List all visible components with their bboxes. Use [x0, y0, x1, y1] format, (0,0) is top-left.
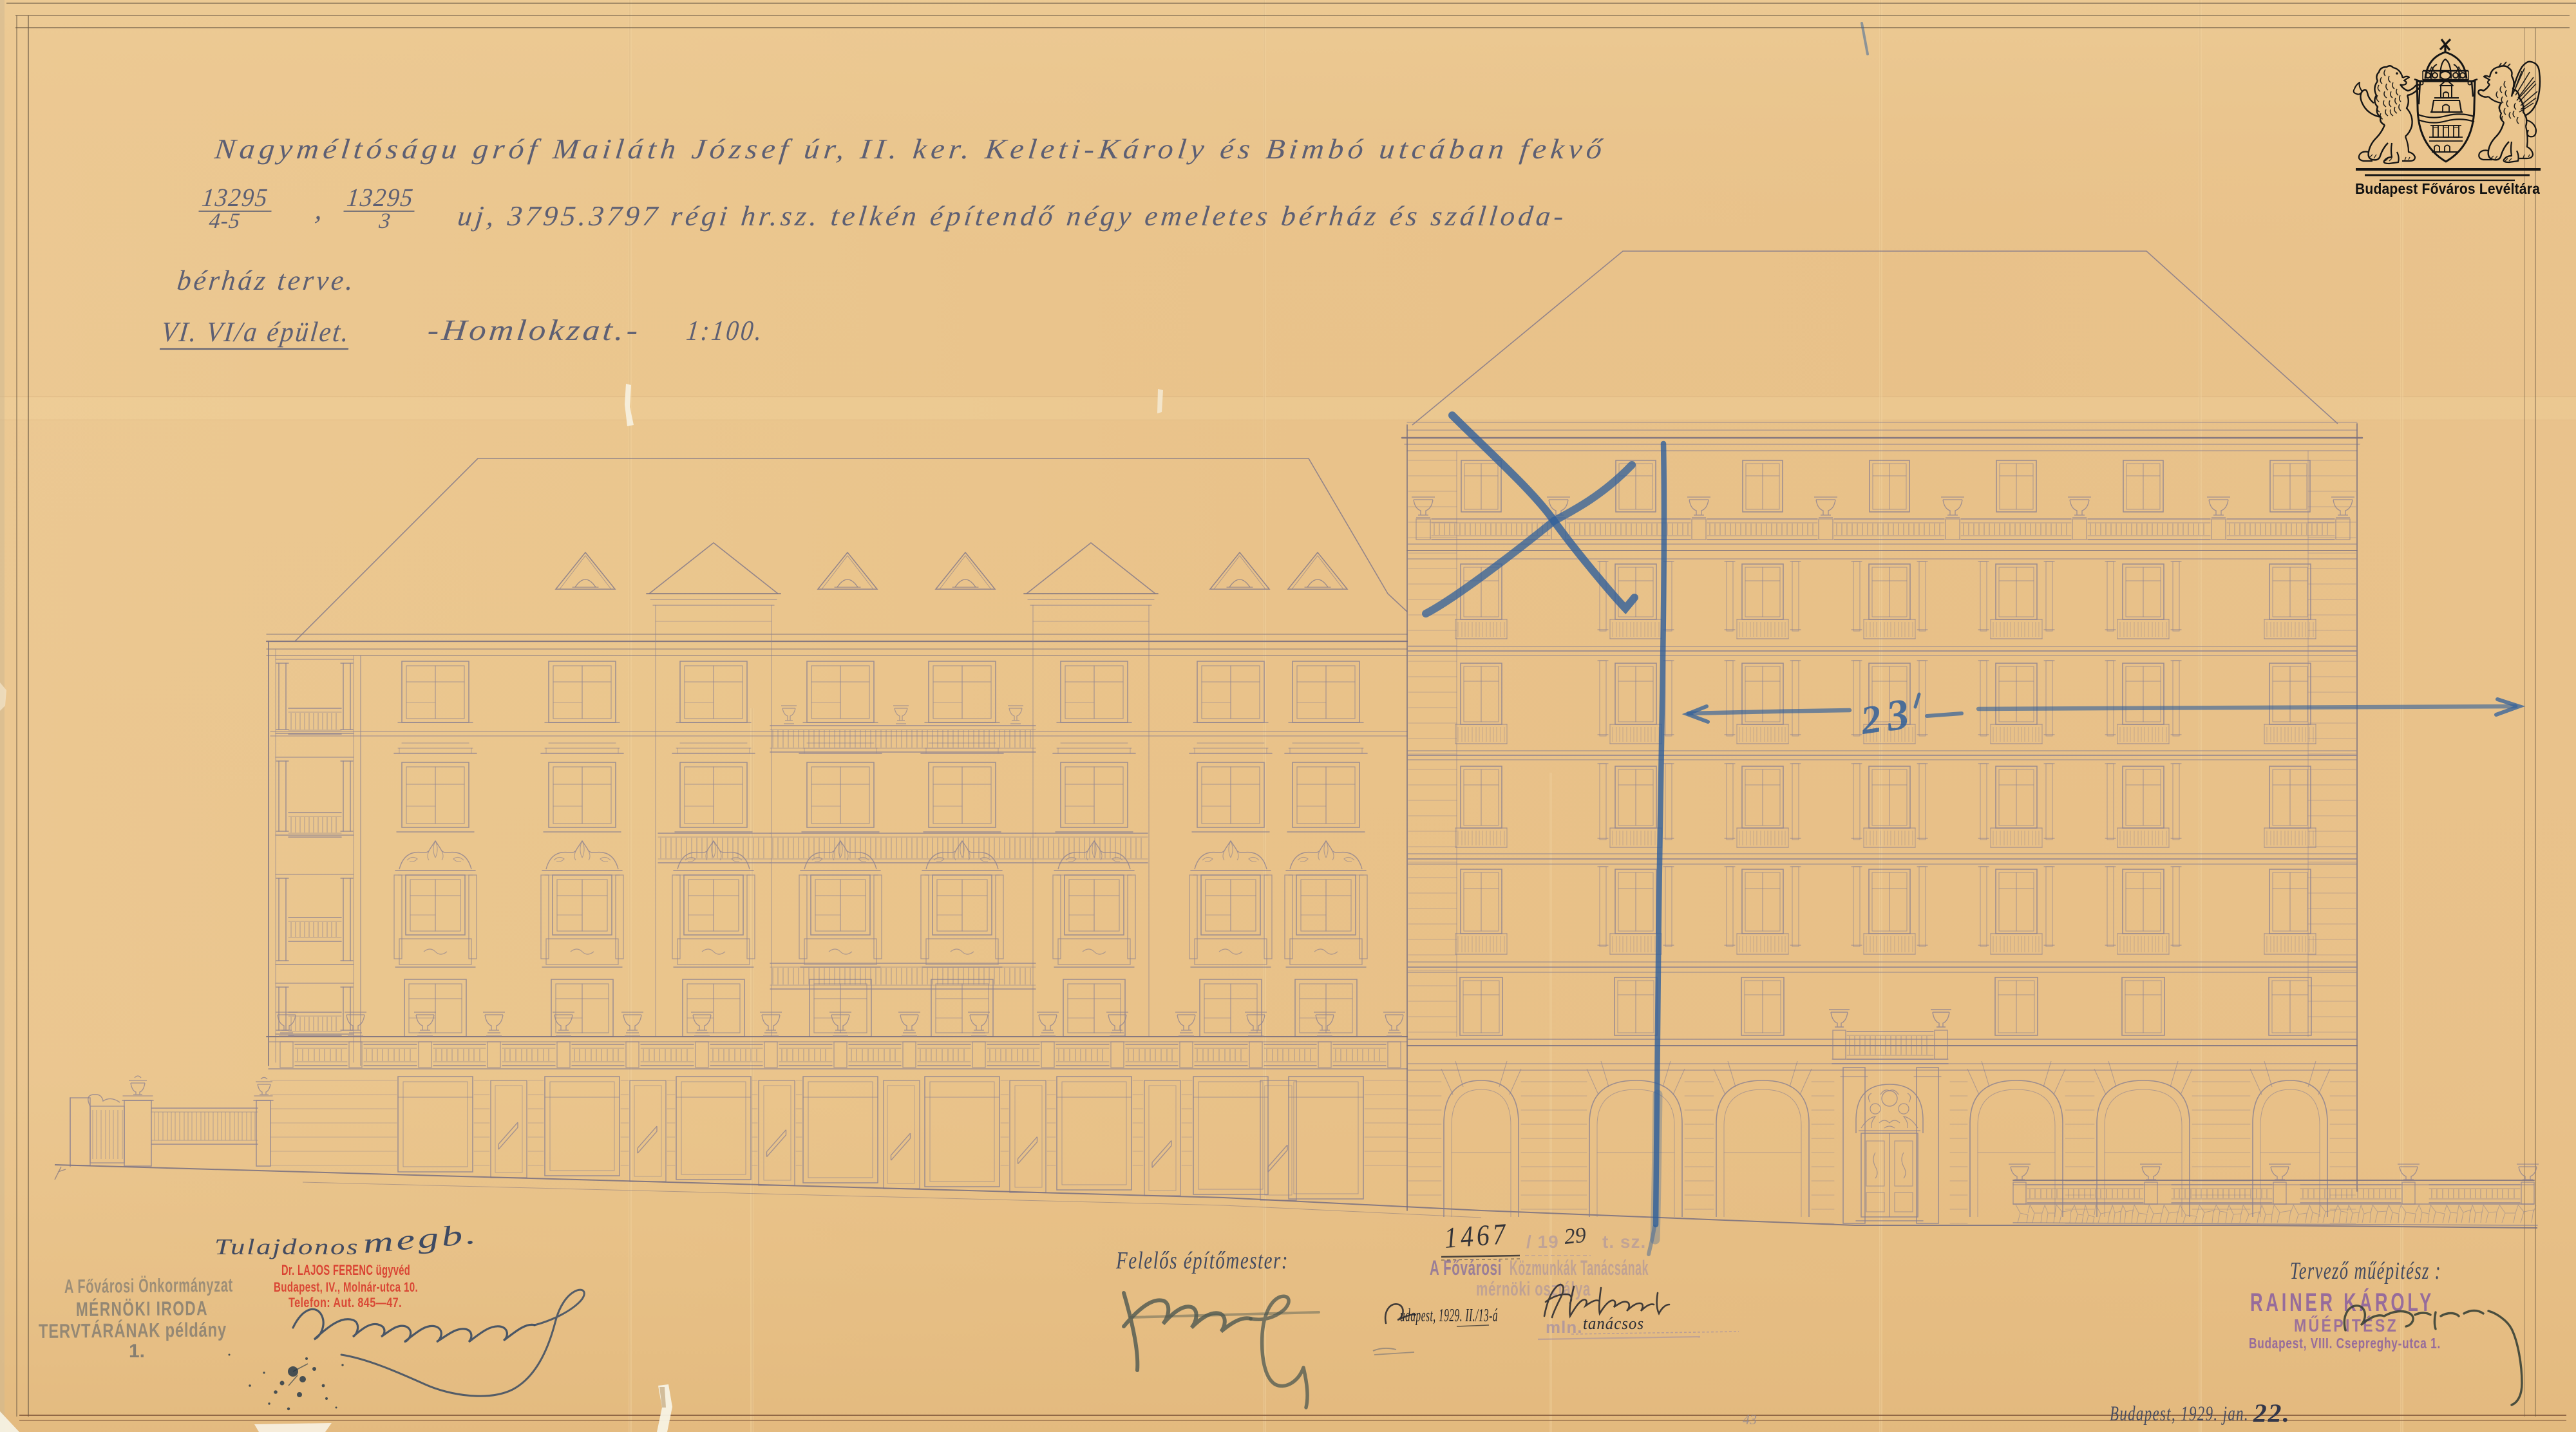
svg-text:A Fővárosi Önkormányzat: A Fővárosi Önkormányzat — [64, 1275, 233, 1297]
svg-text:22.: 22. — [2253, 1399, 2291, 1427]
svg-text:-Homlokzat.-: -Homlokzat.- — [426, 314, 642, 346]
svg-text:udapest, 1929. II./13-á: udapest, 1929. II./13-á — [1400, 1306, 1498, 1326]
svg-text:29: 29 — [1563, 1223, 1587, 1249]
svg-text:Budapest, IV., Molnár-utca 10.: Budapest, IV., Molnár-utca 10. — [274, 1280, 418, 1295]
svg-text:TERVTÁRÁNAK példány: TERVTÁRÁNAK példány — [39, 1318, 227, 1342]
svg-text:tanácsos: tanácsos — [1583, 1314, 1644, 1333]
svg-text:Felelős építőmester:: Felelős építőmester: — [1115, 1247, 1289, 1274]
svg-text:1467: 1467 — [1443, 1217, 1510, 1254]
svg-text:/ 19: / 19 — [1526, 1232, 1559, 1252]
svg-text:43: 43 — [1743, 1411, 1757, 1427]
svg-text:A Fővárosi: A Fővárosi — [1430, 1256, 1502, 1279]
svg-text:Tervező műépitész :: Tervező műépitész : — [2290, 1258, 2441, 1285]
svg-text:4-5: 4-5 — [208, 209, 241, 233]
svg-text:Tulajdonos: Tulajdonos — [214, 1234, 359, 1259]
svg-text:13295: 13295 — [345, 183, 415, 212]
svg-text:13295: 13295 — [200, 183, 270, 212]
svg-text:bérház terve.: bérház terve. — [176, 265, 357, 296]
svg-text:t. sz.: t. sz. — [1602, 1232, 1646, 1252]
svg-text:Nagyméltóságu gróf Mailáth Józ: Nagyméltóságu gróf Mailáth József úr, II… — [213, 133, 1607, 165]
svg-text:Közmunkák Tanácsának: Közmunkák Tanácsának — [1510, 1256, 1649, 1279]
svg-text:1.: 1. — [129, 1341, 145, 1362]
svg-text:Telefon: Aut. 845—47.: Telefon: Aut. 845—47. — [289, 1295, 402, 1310]
svg-text:Budapest Főváros Levéltára: Budapest Főváros Levéltára — [2355, 180, 2541, 197]
svg-text:uj, 3795.3797 régi hr.sz. telk: uj, 3795.3797 régi hr.sz. telkén építend… — [456, 200, 1568, 232]
svg-text:Budapest, VIII. Csepreghy-utca: Budapest, VIII. Csepreghy-utca 1. — [2249, 1335, 2441, 1352]
svg-text:1:100.: 1:100. — [685, 315, 765, 346]
svg-text:MÉRNÖKI IRODA: MÉRNÖKI IRODA — [76, 1297, 208, 1321]
svg-text:VI. VI/a épület.: VI. VI/a épület. — [160, 316, 352, 348]
svg-text:Budapest, 1929. jan.: Budapest, 1929. jan. — [2110, 1402, 2249, 1426]
svg-text:MŰÉPITÉSZ: MŰÉPITÉSZ — [2294, 1315, 2398, 1335]
svg-text:Dr. LAJOS FERENC ügyvéd: Dr. LAJOS FERENC ügyvéd — [281, 1262, 410, 1278]
